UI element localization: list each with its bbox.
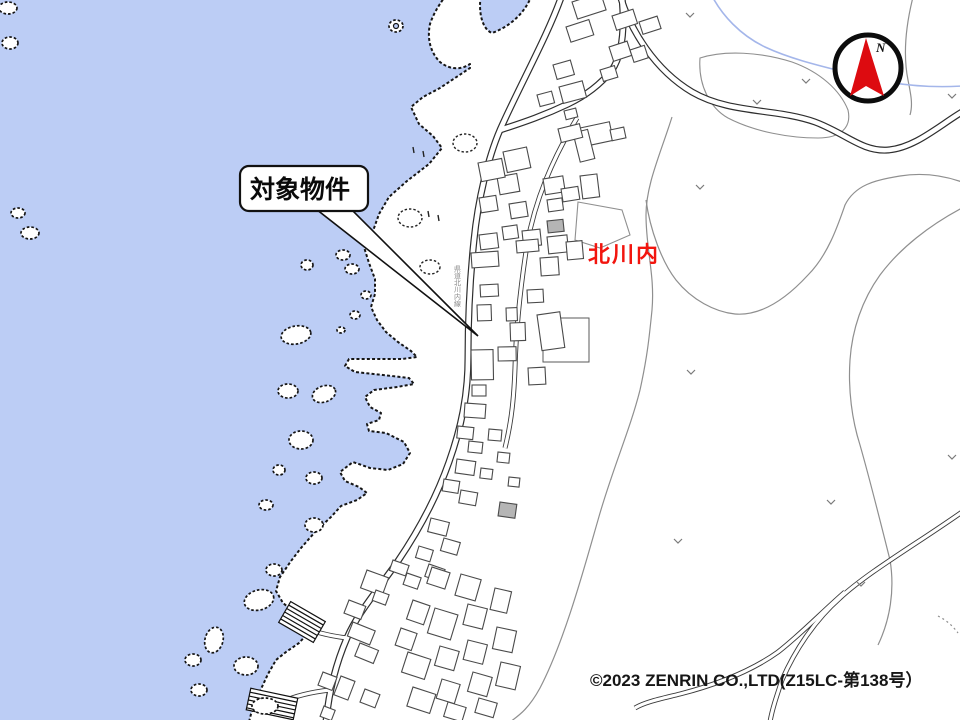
building	[528, 367, 546, 385]
building	[547, 219, 564, 233]
rock-tick	[413, 147, 414, 153]
building	[509, 201, 528, 218]
building	[508, 477, 520, 487]
islet	[273, 465, 285, 475]
islet	[234, 657, 258, 675]
map-canvas: 県道北川内線 北川内 対象物件 N ©2023 ZENRIN CO.,LTD(Z…	[0, 0, 960, 720]
islet	[266, 564, 282, 576]
building	[498, 502, 517, 518]
islet	[289, 431, 313, 449]
islet	[2, 37, 18, 49]
building	[506, 308, 517, 321]
islet	[345, 264, 359, 274]
building	[463, 604, 487, 629]
islet	[191, 684, 207, 696]
building	[463, 640, 487, 664]
islet	[305, 518, 323, 532]
islet	[185, 654, 201, 666]
building	[492, 627, 516, 653]
islet	[278, 384, 298, 398]
islet	[361, 291, 371, 299]
islet	[21, 227, 39, 239]
rock-tick	[428, 211, 429, 217]
building	[510, 322, 526, 341]
place-name-label: 北川内	[588, 242, 660, 267]
building	[479, 233, 499, 250]
building	[610, 127, 626, 141]
building	[527, 289, 544, 303]
building	[480, 468, 493, 479]
islet	[0, 2, 17, 14]
building	[480, 284, 499, 297]
rock-tick	[423, 151, 424, 157]
building	[471, 251, 499, 268]
building	[468, 441, 483, 453]
islet	[306, 472, 322, 484]
islet	[301, 260, 313, 270]
building	[479, 195, 498, 212]
zenrin-map: 県道北川内線 北川内 対象物件 N ©2023 ZENRIN CO.,LTD(Z…	[0, 0, 960, 720]
building	[502, 225, 519, 240]
islet	[336, 250, 350, 260]
building	[561, 186, 580, 201]
islet	[350, 311, 360, 319]
building	[580, 174, 600, 199]
compass-n-label: N	[875, 40, 886, 55]
ring-islet-lagoon	[394, 24, 399, 29]
building	[459, 490, 478, 506]
north-compass: N	[835, 35, 901, 101]
building	[497, 452, 510, 463]
building	[442, 479, 460, 493]
callout-label: 対象物件	[250, 176, 350, 204]
islet	[337, 327, 345, 333]
building	[471, 350, 494, 380]
building	[540, 257, 559, 276]
building	[566, 241, 584, 260]
building	[464, 403, 486, 418]
rock-tick	[438, 215, 439, 221]
building	[516, 239, 539, 253]
islet	[11, 208, 25, 218]
building	[455, 459, 476, 476]
building	[547, 198, 564, 212]
building	[477, 305, 492, 321]
building	[547, 235, 569, 254]
islet	[259, 500, 273, 510]
building	[503, 147, 531, 173]
road-name-label: 県道北川内線	[454, 265, 462, 307]
building	[457, 426, 474, 440]
copyright-text: ©2023 ZENRIN CO.,LTD(Z15LC-第138号）	[590, 670, 922, 690]
building	[478, 158, 505, 181]
building	[472, 385, 486, 396]
building	[498, 347, 516, 361]
building	[537, 312, 565, 351]
building	[488, 429, 502, 441]
islet	[252, 698, 278, 714]
